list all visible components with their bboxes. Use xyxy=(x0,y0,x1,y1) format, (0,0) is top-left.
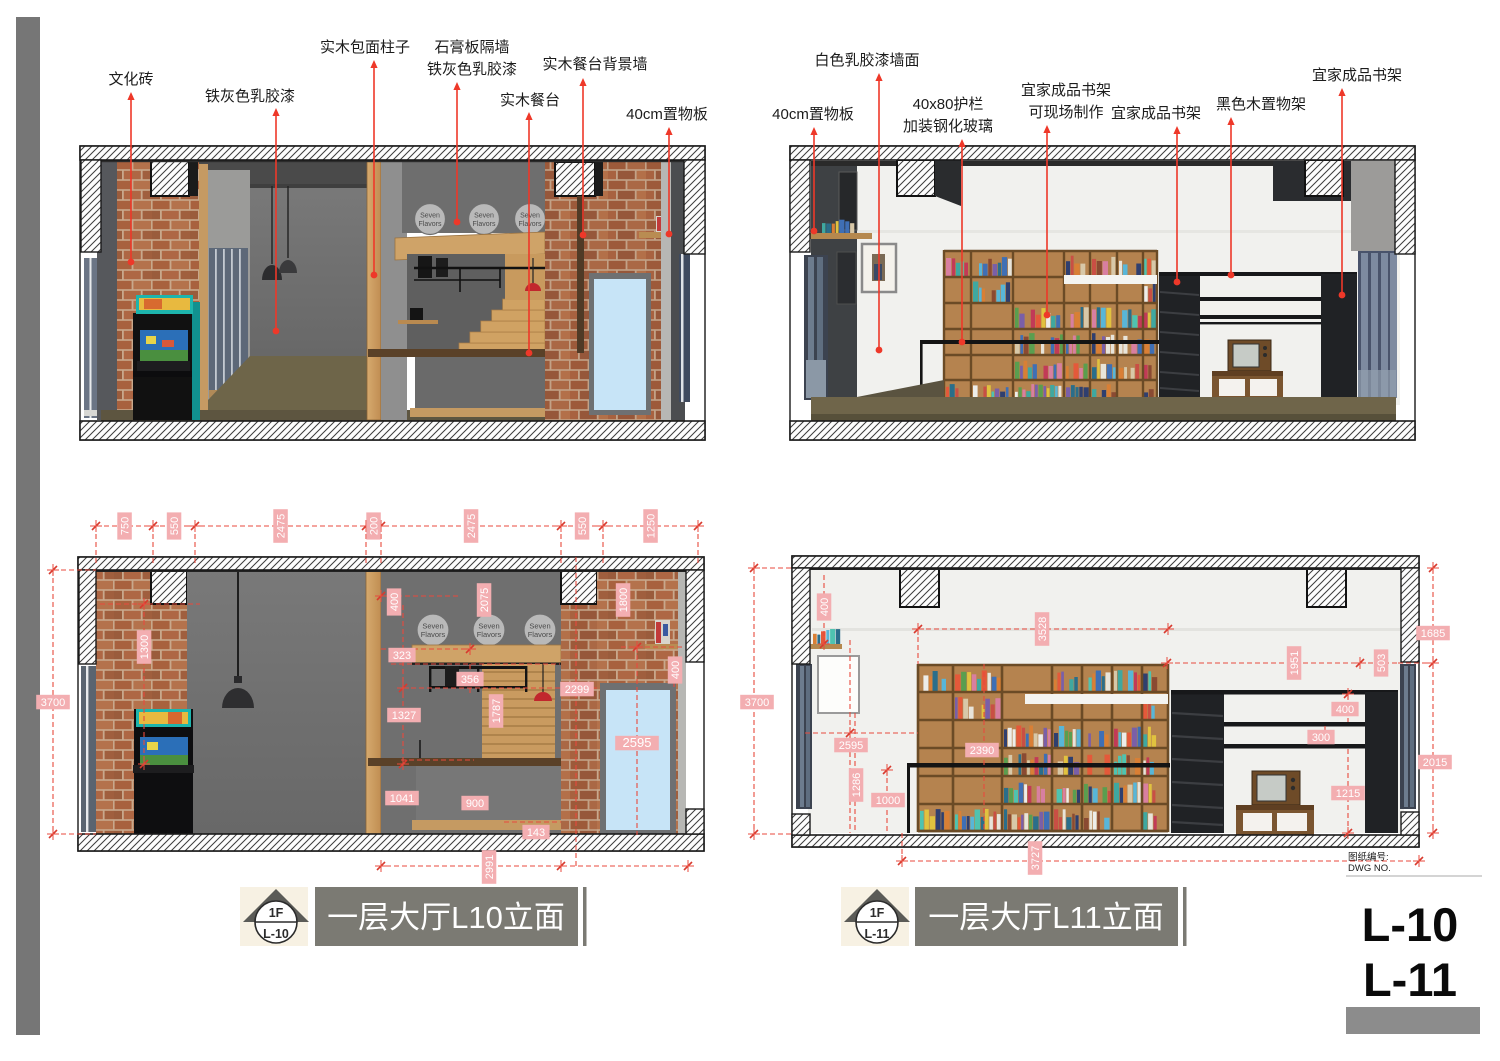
svg-text:200: 200 xyxy=(369,517,381,535)
svg-text:DWG NO.: DWG NO. xyxy=(1348,863,1391,874)
svg-text:2299: 2299 xyxy=(565,684,589,696)
svg-text:加装钢化玻璃: 加装钢化玻璃 xyxy=(903,118,993,135)
svg-text:550: 550 xyxy=(169,517,181,535)
svg-text:2991: 2991 xyxy=(484,855,496,879)
svg-text:356: 356 xyxy=(461,674,479,686)
svg-text:2475: 2475 xyxy=(466,514,478,538)
svg-text:1286: 1286 xyxy=(851,773,863,797)
svg-text:2390: 2390 xyxy=(970,745,994,757)
svg-text:Flavors: Flavors xyxy=(528,630,553,639)
svg-text:宜家成品书架: 宜家成品书架 xyxy=(1111,105,1201,122)
svg-text:一层大厅L11立面: 一层大厅L11立面 xyxy=(928,900,1163,935)
svg-text:1F: 1F xyxy=(269,906,284,920)
svg-text:宜家成品书架: 宜家成品书架 xyxy=(1312,67,1402,84)
svg-text:白色乳胶漆墙面: 白色乳胶漆墙面 xyxy=(814,52,919,69)
svg-text:L-11: L-11 xyxy=(864,927,889,941)
svg-text:400: 400 xyxy=(670,661,682,679)
svg-text:750: 750 xyxy=(120,517,132,535)
svg-text:图纸编号:: 图纸编号: xyxy=(1348,851,1389,863)
svg-text:503: 503 xyxy=(1376,654,1388,672)
svg-text:2595: 2595 xyxy=(623,735,652,750)
svg-text:Seven: Seven xyxy=(474,213,494,220)
svg-text:400: 400 xyxy=(389,593,401,611)
svg-text:1787: 1787 xyxy=(491,699,503,723)
svg-text:300: 300 xyxy=(1312,732,1330,744)
svg-text:铁灰色乳胶漆: 铁灰色乳胶漆 xyxy=(427,61,517,78)
svg-text:L-10: L-10 xyxy=(1362,898,1459,951)
svg-text:黑色木置物架: 黑色木置物架 xyxy=(1216,96,1306,113)
svg-text:Flavors: Flavors xyxy=(519,221,542,228)
svg-text:1951: 1951 xyxy=(1289,651,1301,675)
svg-text:实木餐台: 实木餐台 xyxy=(500,92,560,109)
svg-text:323: 323 xyxy=(393,650,411,662)
svg-text:Seven: Seven xyxy=(520,213,540,220)
svg-text:1041: 1041 xyxy=(390,793,414,805)
svg-text:Seven: Seven xyxy=(420,213,440,220)
svg-text:3528: 3528 xyxy=(1037,617,1049,641)
svg-text:实木包面柱子: 实木包面柱子 xyxy=(320,39,410,56)
svg-text:2015: 2015 xyxy=(1423,757,1447,769)
svg-text:3727: 3727 xyxy=(1030,846,1042,870)
svg-text:Flavors: Flavors xyxy=(477,630,502,639)
svg-text:铁灰色乳胶漆: 铁灰色乳胶漆 xyxy=(205,88,295,105)
svg-text:550: 550 xyxy=(577,517,589,535)
svg-text:实木餐台背景墙: 实木餐台背景墙 xyxy=(542,56,647,73)
svg-text:3700: 3700 xyxy=(41,697,65,709)
svg-text:宜家成品书架: 宜家成品书架 xyxy=(1021,82,1111,99)
svg-text:Flavors: Flavors xyxy=(419,221,442,228)
svg-text:1F: 1F xyxy=(870,906,885,920)
svg-text:2475: 2475 xyxy=(276,514,288,538)
svg-text:石膏板隔墙: 石膏板隔墙 xyxy=(434,38,509,56)
svg-text:3700: 3700 xyxy=(745,697,769,709)
svg-text:40cm置物板: 40cm置物板 xyxy=(772,105,854,123)
svg-text:1250: 1250 xyxy=(646,514,658,538)
svg-text:1000: 1000 xyxy=(876,795,900,807)
svg-text:400: 400 xyxy=(819,598,831,616)
svg-text:2595: 2595 xyxy=(839,740,863,752)
svg-text:Flavors: Flavors xyxy=(421,630,446,639)
svg-text:1685: 1685 xyxy=(1421,628,1445,640)
svg-text:Flavors: Flavors xyxy=(473,221,496,228)
svg-text:1300: 1300 xyxy=(139,635,151,659)
svg-text:L-11: L-11 xyxy=(1363,953,1457,1006)
svg-text:900: 900 xyxy=(466,798,484,810)
svg-text:1215: 1215 xyxy=(1336,788,1360,800)
svg-text:1800: 1800 xyxy=(618,588,630,612)
svg-text:40x80护栏: 40x80护栏 xyxy=(913,96,984,113)
svg-text:400: 400 xyxy=(1336,704,1354,716)
svg-text:2075: 2075 xyxy=(479,588,491,612)
svg-text:一层大厅L10立面: 一层大厅L10立面 xyxy=(327,900,565,935)
svg-text:1327: 1327 xyxy=(392,710,416,722)
svg-text:L-10: L-10 xyxy=(263,927,289,941)
svg-text:文化砖: 文化砖 xyxy=(108,71,153,88)
svg-text:143: 143 xyxy=(527,827,545,839)
svg-text:40cm置物板: 40cm置物板 xyxy=(626,105,708,123)
svg-text:可现场制作: 可现场制作 xyxy=(1028,104,1103,121)
